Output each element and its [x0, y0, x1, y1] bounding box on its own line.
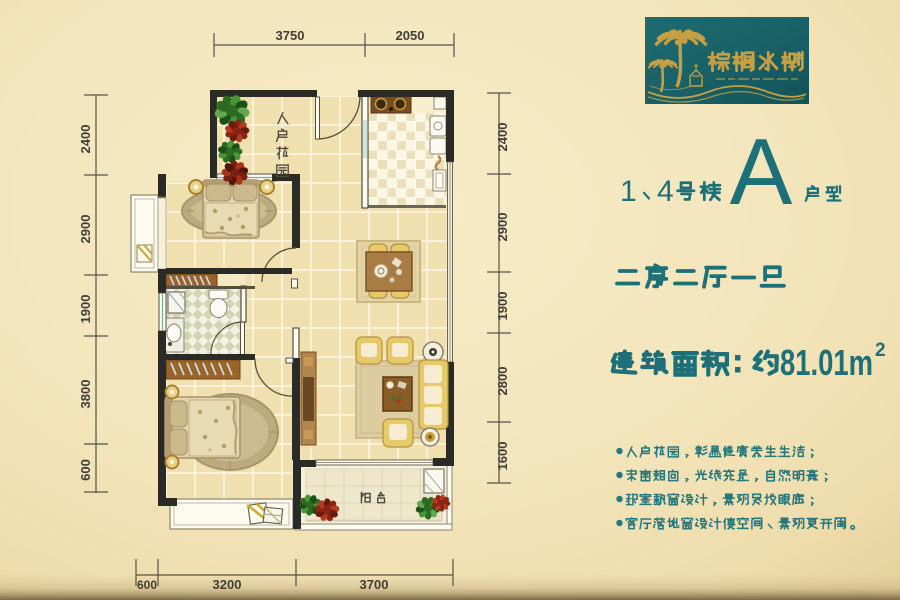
svg-text:2050: 2050 — [396, 28, 425, 43]
svg-text:3700: 3700 — [360, 577, 389, 592]
svg-text:2400: 2400 — [495, 123, 510, 152]
svg-text:4: 4 — [657, 175, 674, 208]
svg-text:2900: 2900 — [78, 215, 93, 244]
svg-text:1900: 1900 — [78, 295, 93, 324]
svg-text:2900: 2900 — [495, 213, 510, 242]
svg-text:600: 600 — [137, 578, 157, 592]
svg-text:1900: 1900 — [495, 292, 510, 321]
svg-text:3800: 3800 — [78, 380, 93, 409]
svg-text:81.01m: 81.01m — [780, 342, 873, 383]
svg-text:1: 1 — [620, 175, 637, 208]
svg-text:2: 2 — [875, 340, 886, 361]
svg-text:2400: 2400 — [78, 125, 93, 154]
svg-text:3750: 3750 — [276, 28, 305, 43]
svg-text:A: A — [730, 119, 793, 224]
svg-text:3200: 3200 — [213, 577, 242, 592]
svg-text:2800: 2800 — [495, 367, 510, 396]
svg-text:600: 600 — [78, 459, 93, 481]
svg-text:1600: 1600 — [495, 442, 510, 471]
